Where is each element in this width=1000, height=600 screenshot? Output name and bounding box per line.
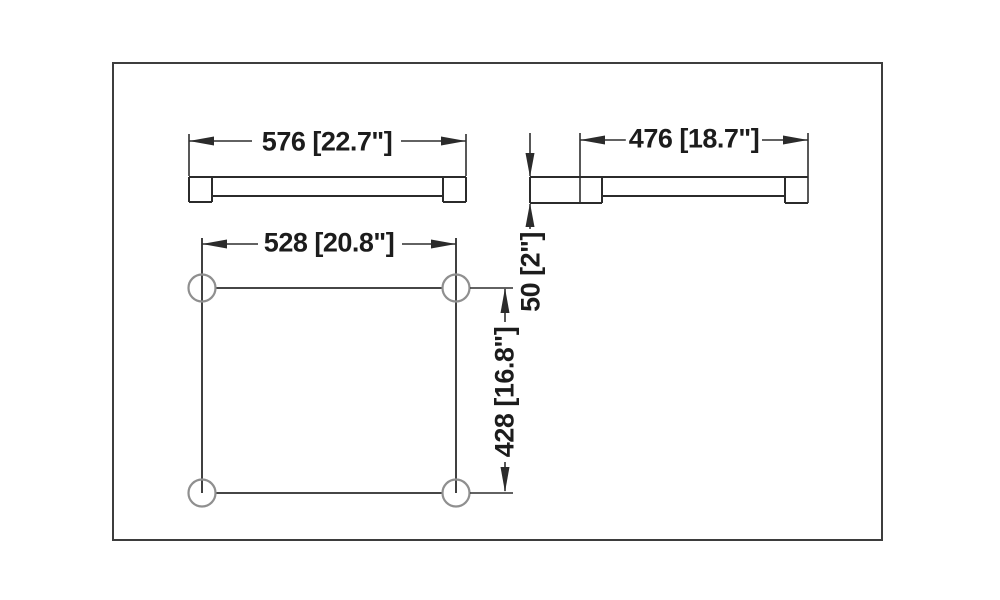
arrow-down-icon (501, 467, 510, 492)
arrow-left-icon (189, 137, 214, 146)
arrow-right-icon (441, 137, 466, 146)
dim-label-front-width: 576 [22.7"] (259, 129, 395, 156)
hole-pattern-shape (189, 238, 470, 507)
front-view-shape (189, 177, 466, 202)
arrow-up-icon (526, 203, 535, 227)
drawing-lines (0, 0, 1000, 600)
dim-label-side-length: 476 [18.7"] (626, 126, 762, 153)
arrow-left-icon (202, 240, 227, 249)
dim-label-side-height: 50 [2"] (518, 229, 545, 315)
arrow-right-icon (431, 240, 456, 249)
drawing-canvas: 576 [22.7"] 476 [18.7"] 50 [2"] 528 [20.… (0, 0, 1000, 600)
arrow-left-icon (580, 136, 605, 145)
dim-label-hole-height: 428 [16.8"] (492, 324, 519, 460)
arrow-down-icon (526, 153, 535, 177)
side-view-shape (530, 177, 808, 203)
arrow-up-icon (501, 288, 510, 313)
border-frame (113, 63, 882, 540)
arrow-right-icon (783, 136, 808, 145)
dim-label-hole-width: 528 [20.8"] (261, 230, 397, 257)
